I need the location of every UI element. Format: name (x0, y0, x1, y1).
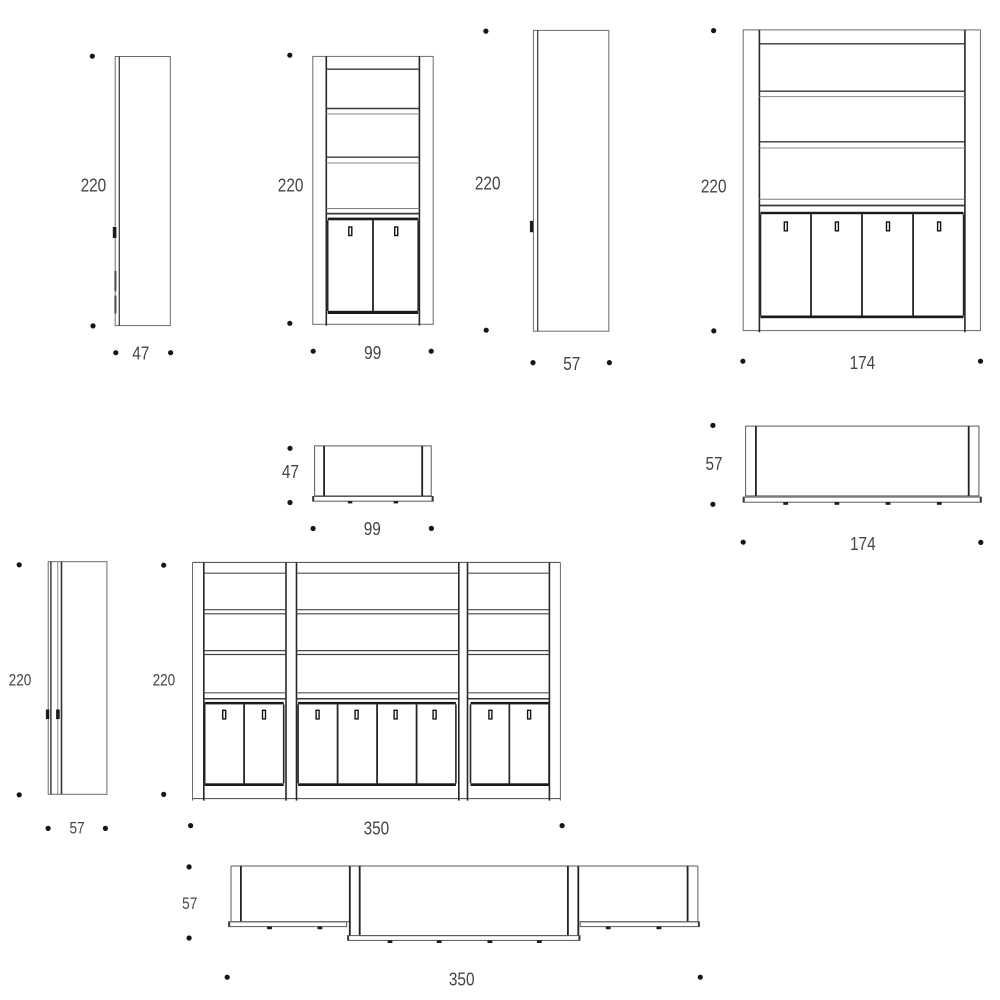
svg-text:57: 57 (705, 454, 722, 475)
svg-text:57: 57 (563, 354, 580, 375)
svg-text:220: 220 (475, 173, 501, 194)
svg-text:350: 350 (364, 818, 390, 839)
svg-text:174: 174 (850, 534, 876, 555)
svg-text:57: 57 (69, 819, 84, 838)
svg-text:99: 99 (364, 519, 381, 540)
svg-text:47: 47 (282, 462, 299, 483)
svg-text:220: 220 (153, 671, 176, 690)
svg-text:220: 220 (81, 175, 107, 196)
svg-text:220: 220 (278, 175, 304, 196)
svg-text:350: 350 (449, 969, 475, 990)
svg-text:174: 174 (850, 353, 876, 374)
svg-text:220: 220 (701, 176, 727, 197)
svg-text:47: 47 (132, 343, 149, 364)
svg-text:99: 99 (364, 343, 381, 364)
svg-text:220: 220 (9, 671, 32, 690)
svg-text:57: 57 (182, 895, 197, 914)
